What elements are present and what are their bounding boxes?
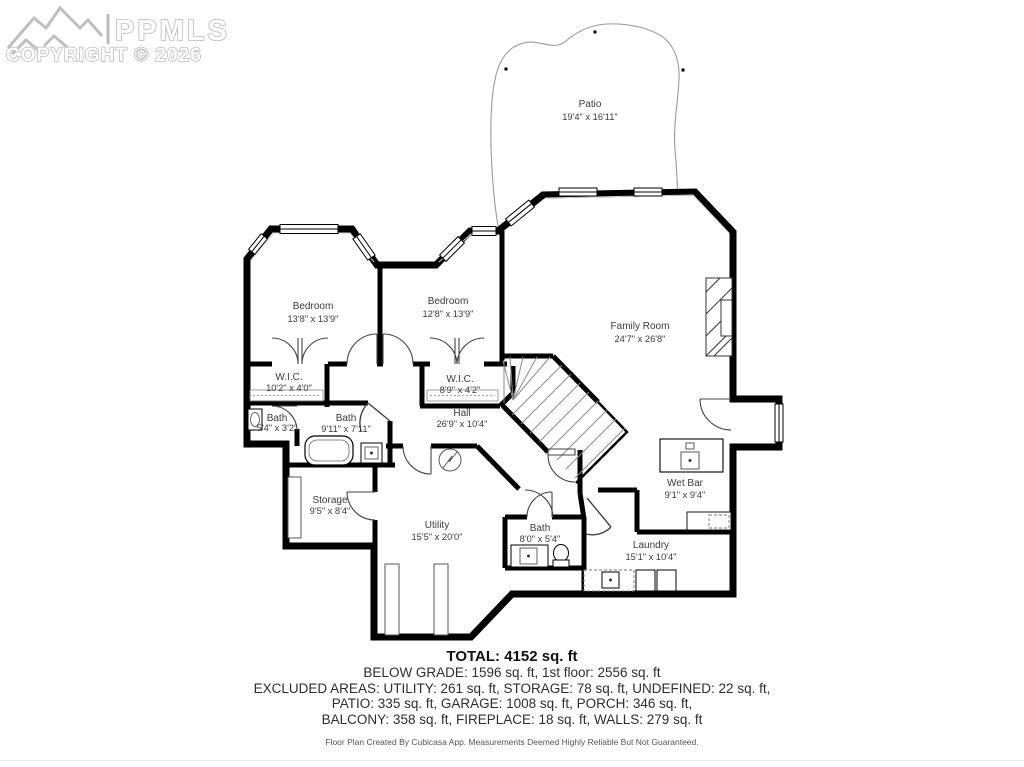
room-dims-storage: 9'5" x 8'4" [310,506,351,516]
room-label-family-room: Family Room [611,321,670,332]
watermark: PPMLS COPYRIGHT © 2026 [6,8,230,66]
floor-plan-page: Patio 19'4" x 16'11" [0,0,1024,767]
vanity-sink-icon-bath3 [511,545,548,567]
summary-line-balcony: BALCONY: 358 sq. ft, FIREPLACE: 18 sq. f… [0,712,1024,728]
room-label-bath-3: Bath [530,523,551,534]
laundry-sink-counter-icon [584,570,634,591]
room-dims-bath-1: 5'4" x 3'2" [257,423,298,433]
utility-post-icon [434,564,448,635]
room-dims-wet-bar: 9'1" x 9'4" [665,490,706,500]
room-dims-bath-3: 8'0" x 5'4" [520,534,561,544]
room-label-bedroom-2: Bedroom [428,296,469,307]
room-label-wet-bar: Wet Bar [667,478,704,489]
bathtub-icon [305,436,353,465]
room-label-utility: Utility [425,520,449,531]
room-dims-laundry: 15'1" x 10'4" [626,552,677,562]
room-label-bath-2: Bath [336,413,357,424]
wet-bar-counter-icon [687,512,731,530]
storage-shelf-icon [288,477,301,538]
room-label-hall: Hall [453,408,470,419]
summary-line-excluded: EXCLUDED AREAS: UTILITY: 261 sq. ft, STO… [0,681,1024,697]
window [472,227,496,236]
summary-line-patio-garage: PATIO: 335 sq. ft, GARAGE: 1008 sq. ft, … [0,696,1024,712]
patio-dims: 19'4" x 16'11" [562,112,617,122]
window [775,404,783,442]
room-label-bedroom-1: Bedroom [293,301,334,312]
room-dims-bedroom-2: 12'8" x 13'9" [423,309,474,319]
patio-name: Patio [579,99,602,110]
watermark-brand: PPMLS [115,15,230,47]
room-label-wic-2: W.I.C. [446,374,473,385]
room-dims-utility: 15'5" x 20'0" [412,532,463,542]
watermark-copyright: COPYRIGHT © 2026 [6,45,202,66]
patio-label: Patio 19'4" x 16'11" [562,99,617,122]
room-label-wic-1: W.I.C. [275,372,302,383]
fireplace-icon [706,278,732,356]
wet-bar-island-icon [660,439,723,472]
sink-icon-bath2 [361,443,382,463]
room-dims-bedroom-1: 13'8" x 13'9" [288,314,339,324]
window [280,225,338,234]
area-summary: TOTAL: 4152 sq. ft BELOW GRADE: 1596 sq.… [0,648,1024,747]
bottom-divider [0,760,1024,761]
room-dims-wic-2: 8'9" x 4'2" [440,385,481,395]
room-dims-family-room: 24'7" x 26'8" [615,334,666,344]
room-label-laundry: Laundry [633,540,669,551]
room-dims-bath-2: 9'11" x 7'11" [321,424,371,434]
window [559,188,597,196]
disclaimer: Floor Plan Created By Cubicasa App. Meas… [0,737,1024,747]
room-dims-wic-1: 10'2" x 4'0" [266,383,312,393]
toilet-icon-bath3 [553,545,569,568]
total-area: TOTAL: 4152 sq. ft [0,648,1024,665]
dryer-icon [657,570,676,591]
utility-post-icon [385,564,399,635]
room-label-storage: Storage [312,495,347,506]
summary-line-grade: BELOW GRADE: 1596 sq. ft, 1st floor: 255… [0,665,1024,681]
washer-icon [636,570,655,591]
window [634,188,662,196]
room-dims-hall: 26'9" x 10'4" [437,419,488,429]
